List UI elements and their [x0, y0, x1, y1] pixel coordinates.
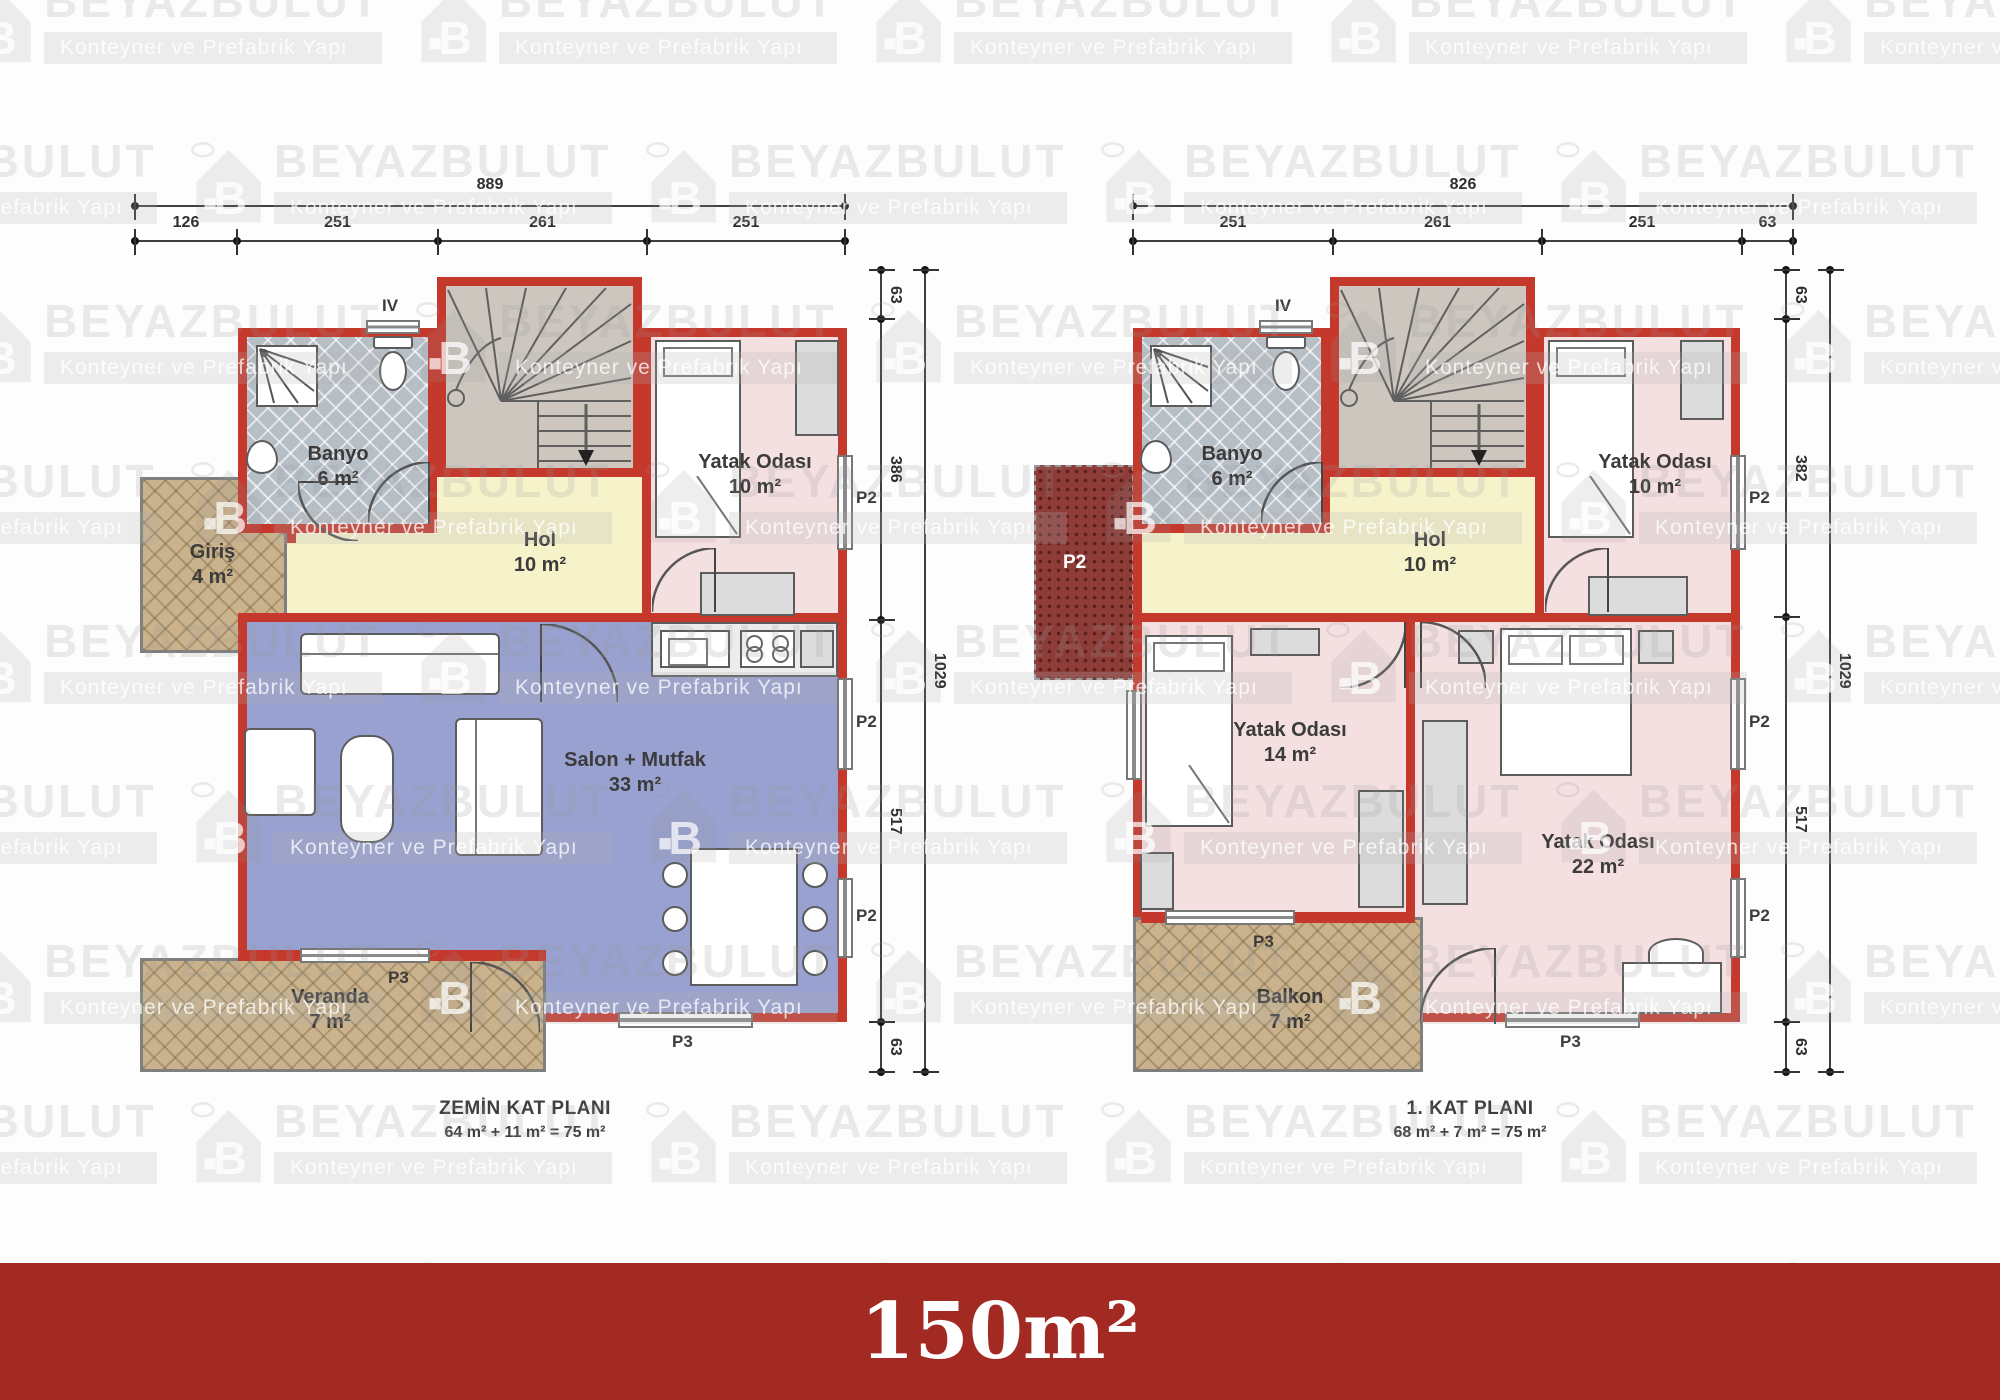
- room-stairs-ground: [437, 277, 642, 477]
- chair-icon: [662, 950, 688, 976]
- total-area-text: 150m²: [860, 1286, 1140, 1377]
- dim-seg: 251: [1542, 214, 1742, 232]
- svg-text:B: B: [1123, 1132, 1157, 1184]
- window-p2: [1730, 878, 1746, 958]
- brand-watermark: BBEYAZBULUTKonteyner ve Prefabrik Yapı: [1780, 298, 2000, 386]
- roof-label-p2: P2: [1063, 552, 1086, 574]
- room-label-yatak10: Yatak Odası10 m²: [1590, 450, 1720, 500]
- dim-line: [135, 240, 845, 242]
- shower-icon: [256, 345, 318, 407]
- plan-title-first: 1. KAT PLANI 68 m² + 7 m² = 75 m²: [1275, 1098, 1665, 1142]
- house-logo-icon: B: [1100, 1098, 1174, 1186]
- vent-label: IV: [1275, 296, 1291, 316]
- dim-total-top: 889: [135, 176, 845, 194]
- door-arc: [1420, 948, 1496, 1024]
- window-yatak14: [1126, 690, 1142, 780]
- dresser-icon: [1680, 340, 1724, 420]
- dresser-icon: [795, 340, 839, 436]
- dim-seg: 126: [135, 214, 237, 232]
- room-label-giris: Giriş4 m²: [150, 540, 275, 590]
- brand-watermark: BBEYAZBULUTKonteyner ve Prefabrik Yapı: [870, 0, 1292, 66]
- wardrobe-icon: [1422, 720, 1468, 905]
- window-label-p2: P2: [856, 712, 877, 732]
- room-label-hol: Hol10 m²: [1360, 528, 1500, 578]
- dim-seg: 251: [1133, 214, 1333, 232]
- chair-icon: [662, 862, 688, 888]
- room-label-veranda: Veranda7 m²: [250, 985, 410, 1035]
- dim-line: [1133, 205, 1793, 207]
- window-label-p2: P2: [1749, 488, 1770, 508]
- dim-seg: 382: [1791, 319, 1809, 617]
- svg-text:B: B: [0, 332, 17, 384]
- chair-icon: [802, 950, 828, 976]
- house-logo-icon: B: [190, 1098, 264, 1186]
- toilet-tank-icon: [1266, 336, 1306, 349]
- window-p2: [837, 878, 853, 958]
- house-logo-icon: B: [0, 938, 34, 1026]
- nightstand-icon: [1140, 852, 1174, 910]
- house-logo-icon: B: [870, 0, 944, 66]
- single-bed-icon: [1548, 340, 1634, 538]
- house-logo-icon: B: [0, 0, 34, 66]
- dim-seg: 63: [1742, 214, 1793, 232]
- room-label-balkon: Balkon7 m²: [1210, 985, 1370, 1035]
- brand-watermark: BBEYAZBULUTKonteyner ve Prefabrik Yapı: [0, 458, 157, 546]
- brand-watermark: BBEYAZBULUTKonteyner ve Prefabrik Yapı: [0, 1098, 157, 1186]
- dim-total-right: 1029: [930, 270, 948, 1072]
- dim-line: [1133, 240, 1793, 242]
- chair-icon: [802, 906, 828, 932]
- door-arc: [1545, 548, 1609, 612]
- dim-seg: 261: [1333, 214, 1542, 232]
- shower-icon: [1150, 345, 1212, 407]
- veranda-window: [300, 948, 430, 963]
- window-label-p3: P3: [1253, 932, 1274, 952]
- brand-watermark: BBEYAZBULUTKonteyner ve Prefabrik Yapı: [1780, 938, 2000, 1026]
- banyo-vent-window: [366, 320, 420, 334]
- dim-total-top: 826: [1133, 176, 1793, 194]
- plan-area: 68 m² + 7 m² = 75 m²: [1275, 1124, 1665, 1142]
- brand-watermark: BBEYAZBULUTKonteyner ve Prefabrik Yapı: [1325, 0, 1747, 66]
- window-label-p2: P2: [856, 488, 877, 508]
- plan-area: 64 m² + 11 m² = 75 m²: [330, 1124, 720, 1142]
- window-p3: [618, 1012, 753, 1028]
- svg-text:B: B: [0, 12, 17, 64]
- house-logo-icon: B: [415, 0, 489, 66]
- brand-watermark: BBEYAZBULUTKonteyner ve Prefabrik Yapı: [0, 0, 382, 66]
- svg-text:B: B: [213, 1132, 247, 1184]
- single-bed-icon: [655, 340, 741, 538]
- dim-seg: 386: [886, 319, 904, 620]
- svg-text:B: B: [0, 972, 17, 1024]
- double-bed-icon: [1500, 628, 1632, 776]
- banyo-vent-window: [1259, 320, 1313, 334]
- svg-text:B: B: [438, 12, 472, 64]
- dim-seg: 251: [237, 214, 438, 232]
- toilet-icon: [379, 351, 407, 391]
- pillow-icon: [1508, 635, 1563, 665]
- sofa-icon: [300, 633, 500, 695]
- staircase-icon: [1339, 286, 1526, 468]
- pillow-icon: [663, 347, 733, 377]
- dim-line: [924, 270, 926, 1072]
- dim-seg: 63: [886, 270, 904, 319]
- house-logo-icon: B: [0, 298, 34, 386]
- plan-title-ground: ZEMİN KAT PLANI 64 m² + 11 m² = 75 m²: [330, 1098, 720, 1142]
- brand-watermark: BBEYAZBULUTKonteyner ve Prefabrik Yapı: [415, 0, 837, 66]
- dim-total-right: 1029: [1835, 270, 1853, 1072]
- shelf-icon: [1250, 628, 1320, 656]
- dim-seg: 63: [1791, 1022, 1809, 1072]
- brand-watermark: BBEYAZBULUTKonteyner ve Prefabrik Yapı: [1780, 618, 2000, 706]
- fridge-icon: [800, 630, 834, 668]
- room-label-yatak10: Yatak Odası10 m²: [690, 450, 820, 500]
- room-label-salon: Salon + Mutfak33 m²: [520, 748, 750, 798]
- window-p3: [1505, 1012, 1640, 1028]
- kitchen-sink-icon: [660, 630, 730, 668]
- wardrobe-icon: [1358, 790, 1404, 908]
- window-label-p2: P2: [1749, 712, 1770, 732]
- room-label-yatak22: Yatak Odası22 m²: [1508, 830, 1688, 880]
- vanity-desk-icon: [1622, 962, 1722, 1014]
- house-logo-icon: B: [1780, 0, 1854, 66]
- toilet-tank-icon: [373, 336, 413, 349]
- door-arc: [540, 624, 618, 702]
- room-label-hol: Hol10 m²: [470, 528, 610, 578]
- svg-text:B: B: [0, 652, 17, 704]
- svg-text:B: B: [1803, 12, 1837, 64]
- room-label-banyo: Banyo6 m²: [268, 442, 408, 492]
- pillow-icon: [1569, 635, 1624, 665]
- door-arc: [652, 548, 716, 612]
- nightstand-icon: [1638, 630, 1674, 664]
- window-label-p3: P3: [672, 1032, 693, 1052]
- dim-seg: 517: [886, 620, 904, 1022]
- door-arc: [470, 962, 540, 1032]
- plan-name: 1. KAT PLANI: [1275, 1098, 1665, 1120]
- room-label-banyo: Banyo6 m²: [1162, 442, 1302, 492]
- pillow-icon: [1556, 347, 1626, 377]
- pillow-icon: [1153, 642, 1225, 672]
- brand-watermark: BBEYAZBULUTKonteyner ve Prefabrik Yapı: [1780, 0, 2000, 66]
- armchair-icon: [244, 728, 316, 816]
- window-p2: [837, 455, 853, 550]
- window-p2: [837, 678, 853, 770]
- window-label-p2: P2: [1749, 906, 1770, 926]
- dim-seg: 251: [647, 214, 845, 232]
- vent-label: IV: [382, 296, 398, 316]
- dim-seg: 517: [1791, 617, 1809, 1022]
- chair-icon: [662, 906, 688, 932]
- window-label-p2: P2: [856, 906, 877, 926]
- house-logo-icon: B: [0, 618, 34, 706]
- dim-seg: 63: [1791, 270, 1809, 319]
- window-p2: [1730, 455, 1746, 550]
- svg-text:B: B: [893, 12, 927, 64]
- door-arc: [1340, 622, 1406, 688]
- room-label-yatak14: Yatak Odası14 m²: [1205, 718, 1375, 768]
- dim-line: [135, 205, 845, 207]
- window-p2: [1730, 678, 1746, 770]
- room-stairs-first: [1330, 277, 1535, 477]
- brand-watermark: BBEYAZBULUTKonteyner ve Prefabrik Yapı: [0, 778, 157, 866]
- house-logo-icon: B: [1325, 0, 1399, 66]
- staircase-icon: [446, 286, 633, 468]
- dim-line: [1829, 270, 1831, 1072]
- toilet-icon: [1272, 351, 1300, 391]
- stove-icon: [740, 630, 795, 668]
- dim-seg: 261: [438, 214, 647, 232]
- dim-line: [1785, 270, 1787, 1072]
- svg-text:B: B: [1348, 12, 1382, 64]
- floorplan-sheet: IV P2 P2 P2 P3 P3 Banyo6 m² Giriş4 m² Ho…: [0, 0, 2000, 1400]
- dim-seg: 63: [886, 1022, 904, 1072]
- door-arc: [1420, 622, 1486, 688]
- area-banner: 150m²: [0, 1263, 2000, 1400]
- balkon-window: [1165, 910, 1295, 925]
- dim-line: [880, 270, 882, 1072]
- plan-name: ZEMİN KAT PLANI: [330, 1098, 720, 1120]
- coffee-table-icon: [340, 735, 394, 843]
- window-label-p3: P3: [1560, 1032, 1581, 1052]
- chair-icon: [802, 862, 828, 888]
- dining-table-icon: [690, 848, 798, 986]
